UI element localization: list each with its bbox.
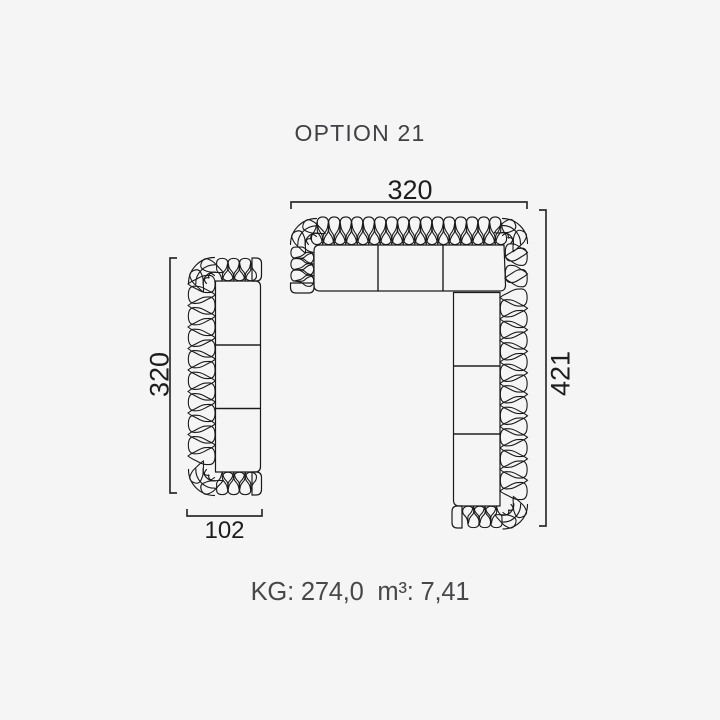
svg-text:KG: 274,0 m³: 7,41: KG: 274,0 m³: 7,41 (251, 578, 470, 606)
svg-text:OPTION 21: OPTION 21 (295, 120, 426, 146)
svg-text:320: 320 (387, 175, 432, 205)
svg-text:421: 421 (546, 351, 576, 396)
svg-text:102: 102 (204, 517, 244, 544)
svg-text:320: 320 (145, 352, 175, 397)
